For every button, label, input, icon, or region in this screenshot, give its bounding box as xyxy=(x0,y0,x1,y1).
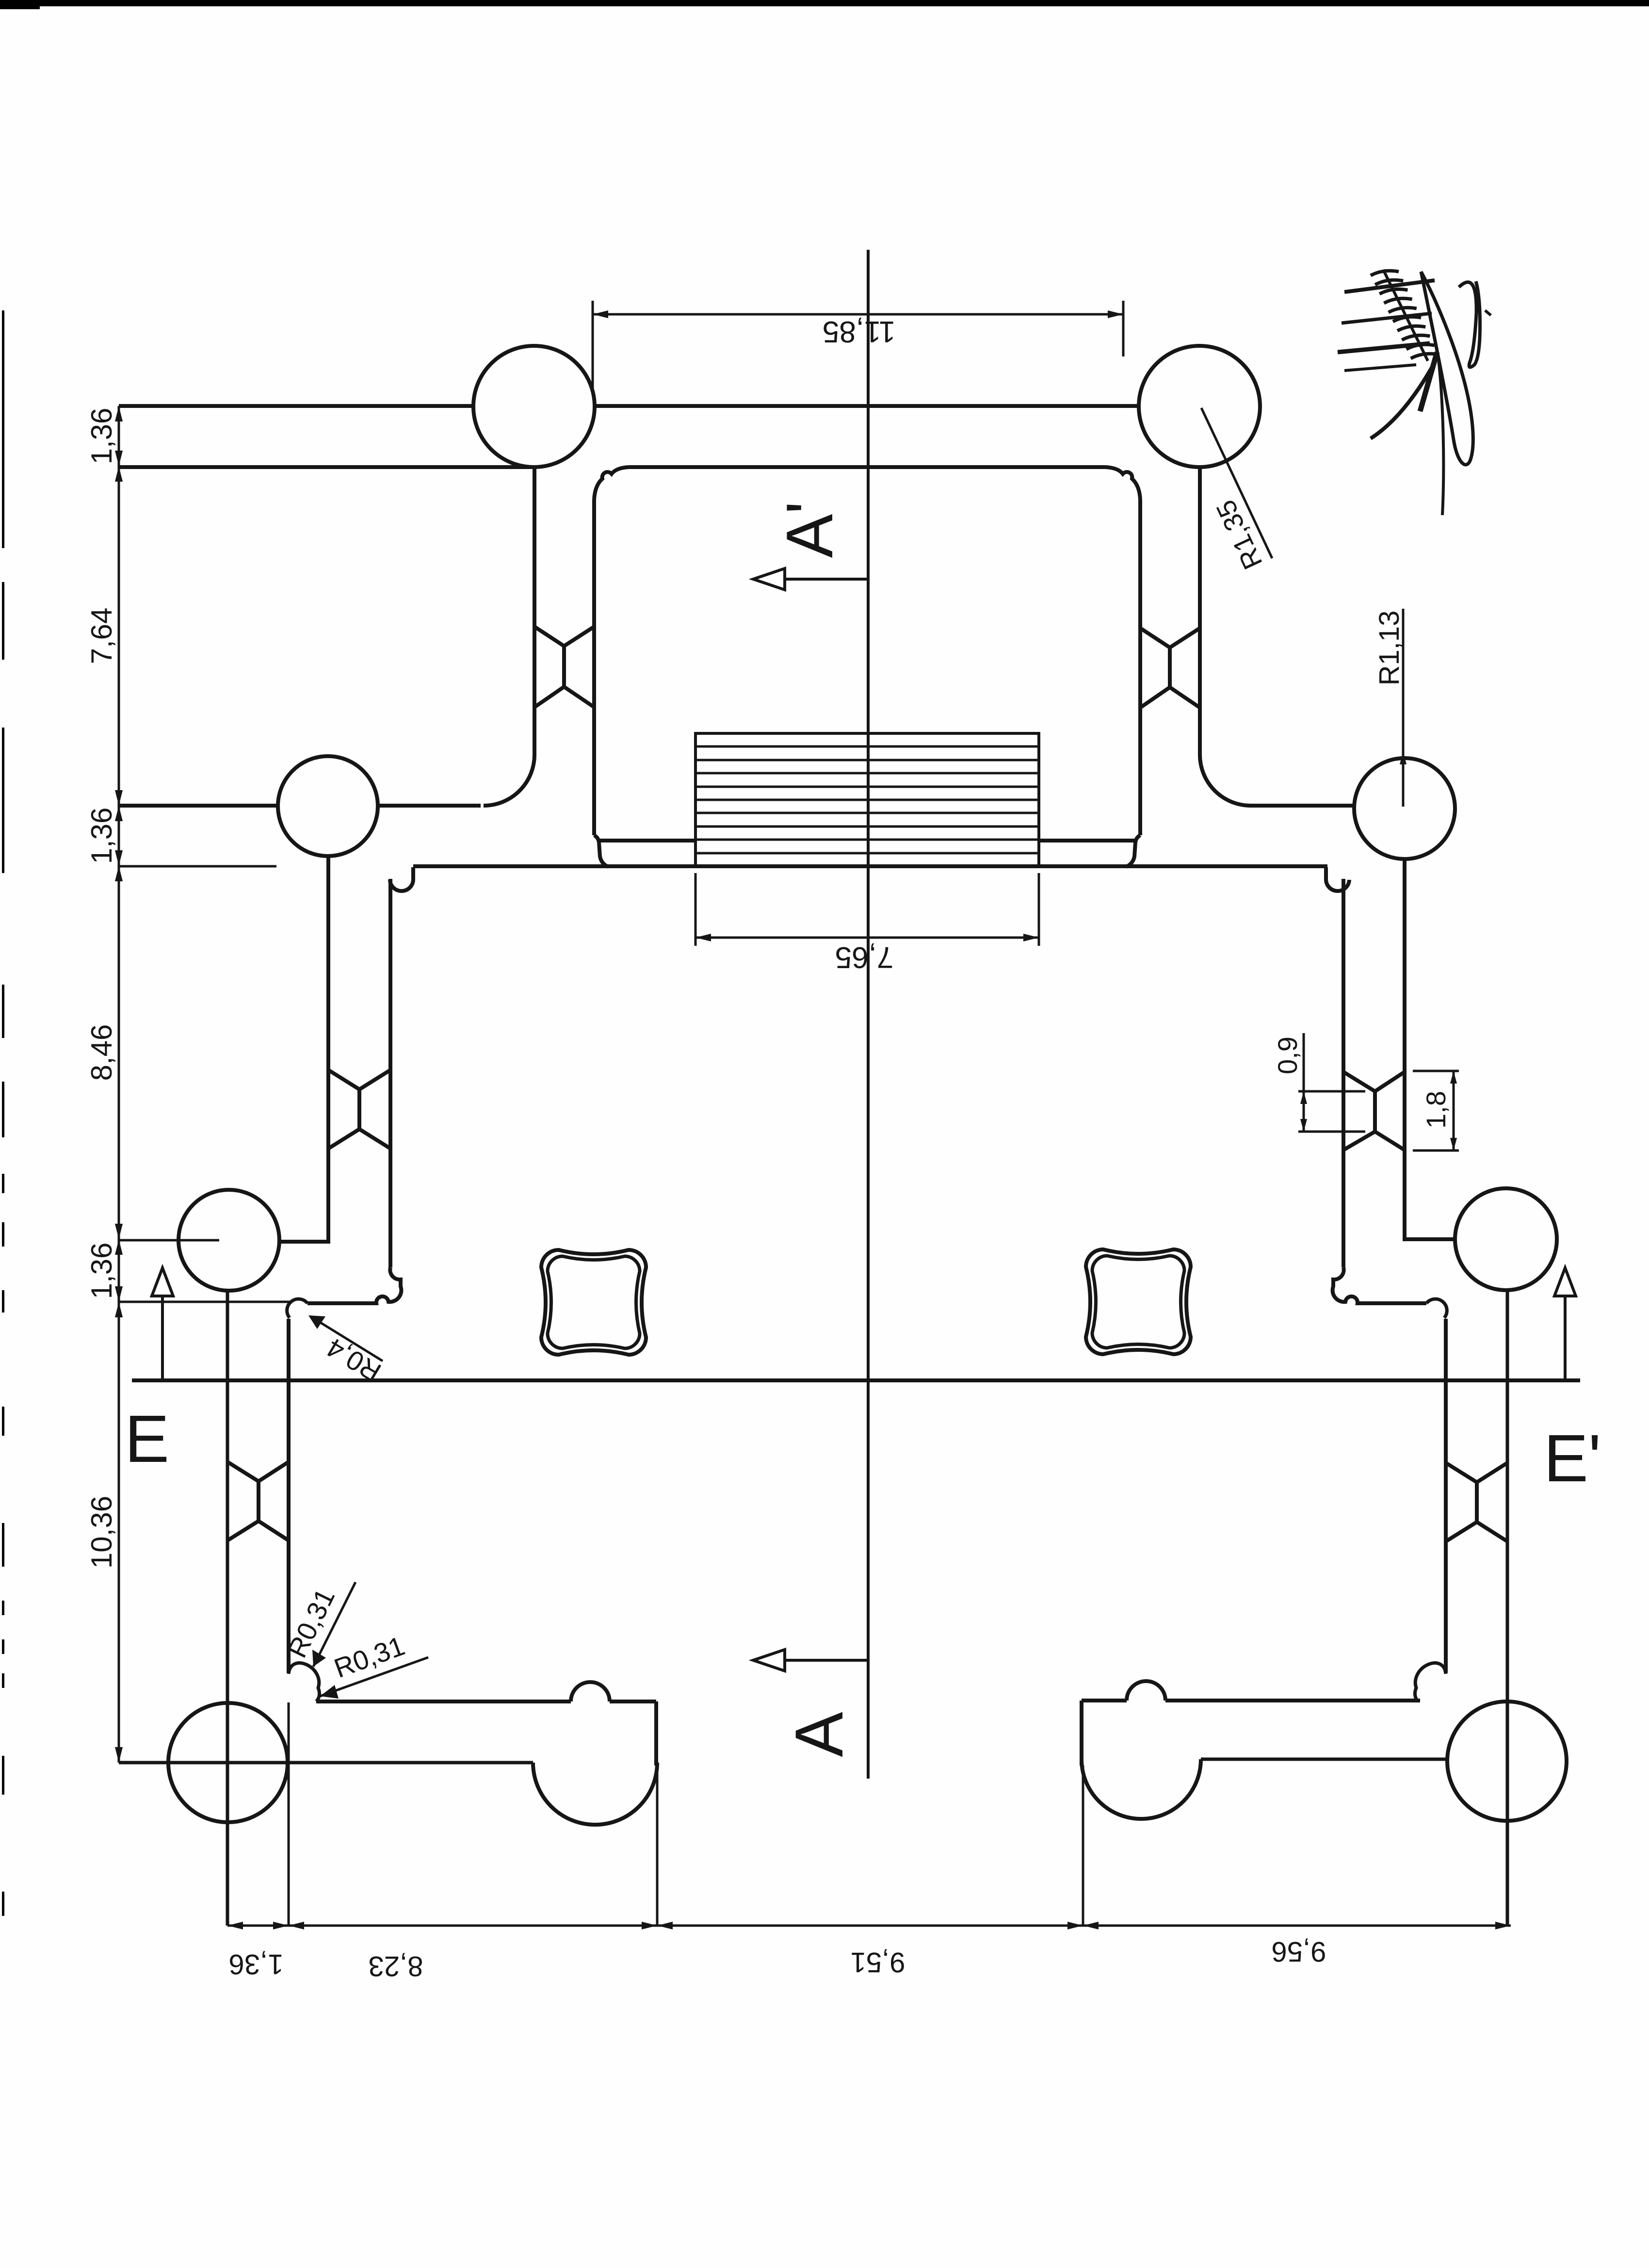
svg-text:7,65: 7,65 xyxy=(835,940,894,974)
svg-text:10,36: 10,36 xyxy=(85,1496,118,1569)
svg-text:9,56: 9,56 xyxy=(1272,1936,1326,1967)
svg-text:A': A' xyxy=(773,502,846,558)
svg-text:R1,13: R1,13 xyxy=(1374,611,1405,686)
svg-text:8,46: 8,46 xyxy=(85,1024,118,1081)
svg-text:E: E xyxy=(125,1402,169,1476)
svg-text:7,64: 7,64 xyxy=(85,608,118,664)
svg-text:1,36: 1,36 xyxy=(85,808,118,864)
svg-text:1,8: 1,8 xyxy=(1421,1091,1451,1129)
svg-text:E': E' xyxy=(1544,1421,1601,1496)
svg-text:1,36: 1,36 xyxy=(85,408,118,465)
svg-text:8,23: 8,23 xyxy=(369,1950,423,1982)
svg-text:A: A xyxy=(781,1712,857,1757)
svg-text:1,36: 1,36 xyxy=(229,1948,284,1980)
svg-text:9,51: 9,51 xyxy=(851,1946,905,1978)
svg-text:0,9: 0,9 xyxy=(1272,1037,1303,1074)
svg-text:11,85: 11,85 xyxy=(823,315,896,348)
svg-text:1,36: 1,36 xyxy=(85,1243,118,1299)
